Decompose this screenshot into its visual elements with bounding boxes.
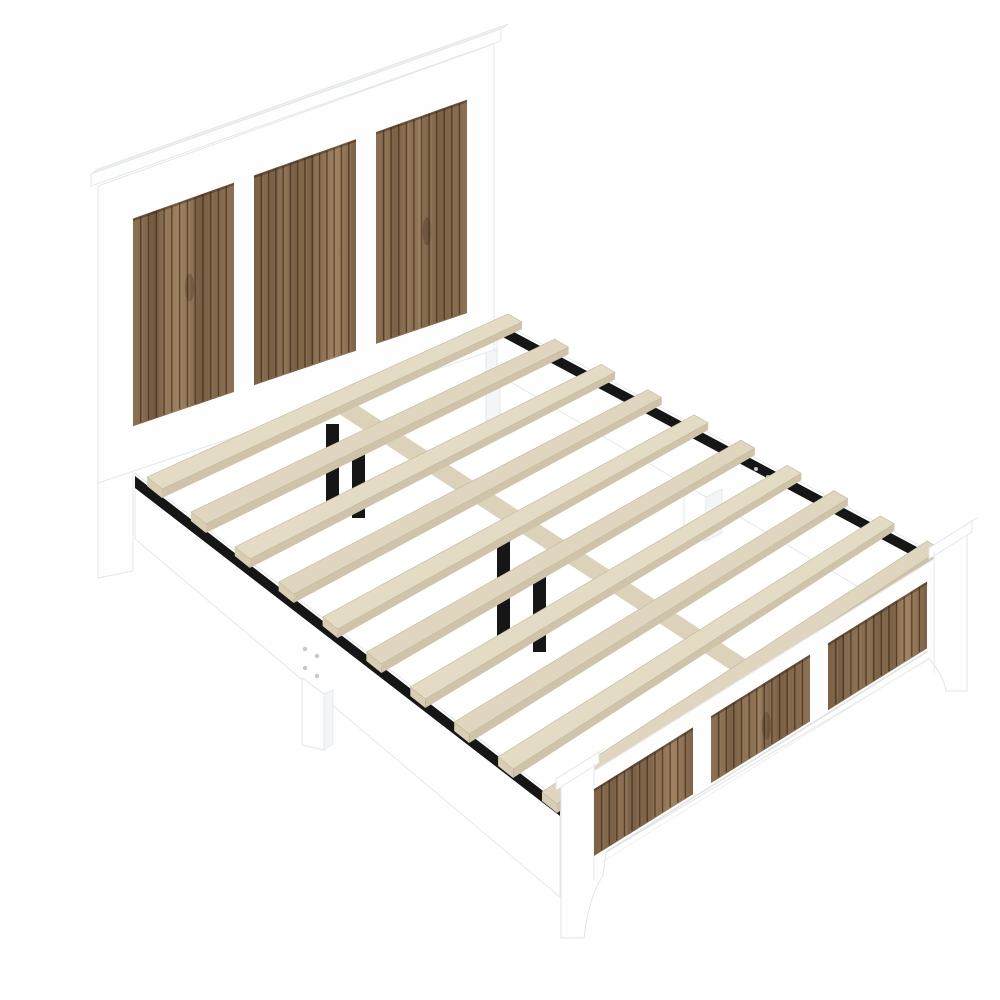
- screw-hole: [303, 666, 307, 670]
- wood-knot: [422, 217, 431, 245]
- grain-streak: [749, 687, 757, 759]
- bed-product-image: [0, 0, 1000, 1000]
- grain-streak: [150, 209, 159, 420]
- wood-slat-panel: [254, 139, 356, 385]
- screw-hole: [315, 674, 319, 678]
- wood-slat-panel: [376, 100, 467, 344]
- headboard-left-leg: [98, 471, 133, 578]
- screw-hole: [303, 647, 307, 651]
- screw-hole: [754, 467, 758, 471]
- screw-hole: [315, 654, 319, 658]
- left-rail-middle-leg-side: [324, 690, 333, 750]
- grain-streak: [269, 167, 278, 380]
- bed-frame-render: [0, 0, 1000, 1000]
- grain-highlight: [721, 707, 726, 777]
- grain-streak: [888, 600, 896, 672]
- wood-slat-panel: [133, 183, 234, 427]
- grain-highlight: [867, 616, 873, 686]
- grain-streak: [609, 775, 617, 847]
